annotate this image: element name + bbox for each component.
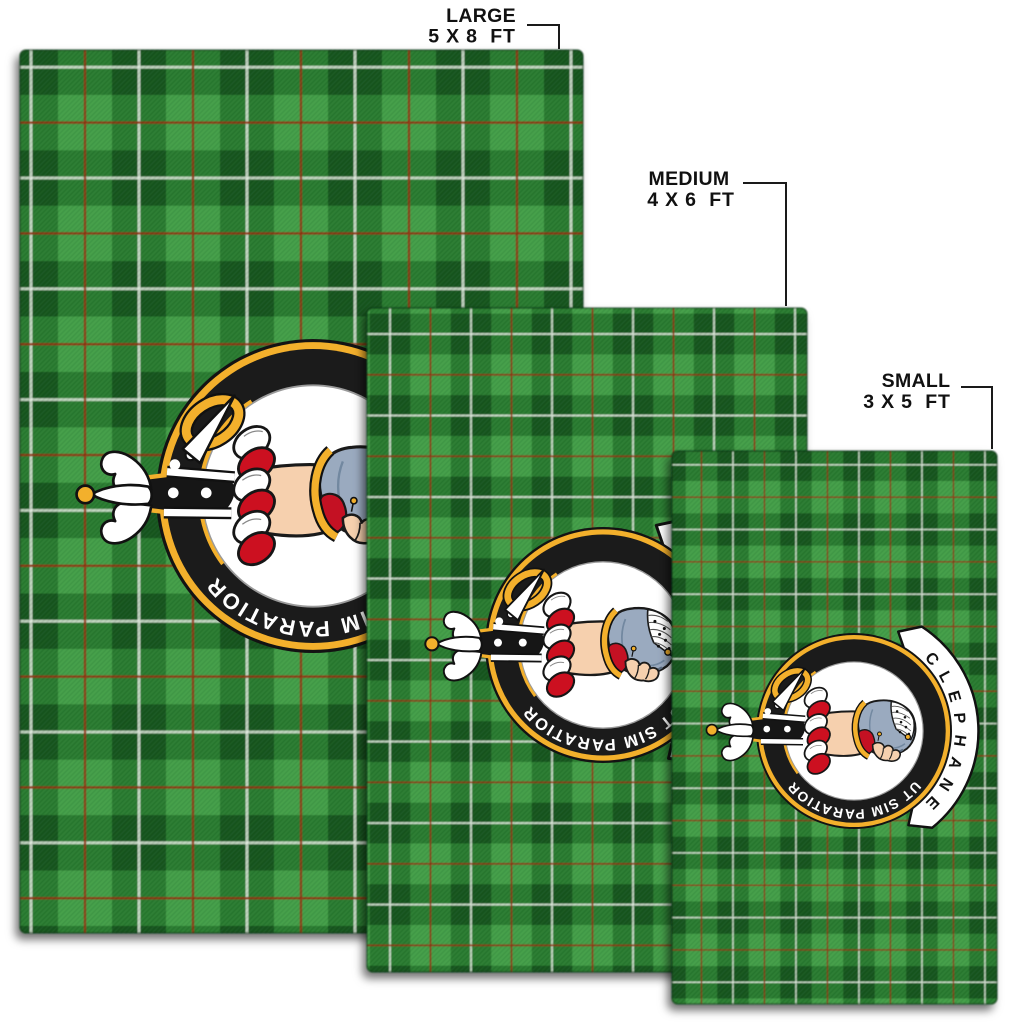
svg-text:3 X 5 FT: 3 X 5 FT [863, 391, 950, 413]
svg-text:SMALL: SMALL [882, 370, 951, 392]
svg-text:LARGE: LARGE [446, 5, 516, 27]
svg-text:4 X 6 FT: 4 X 6 FT [647, 189, 734, 211]
svg-text:5 X 8 FT: 5 X 8 FT [428, 26, 515, 48]
svg-text:MEDIUM: MEDIUM [649, 168, 730, 190]
